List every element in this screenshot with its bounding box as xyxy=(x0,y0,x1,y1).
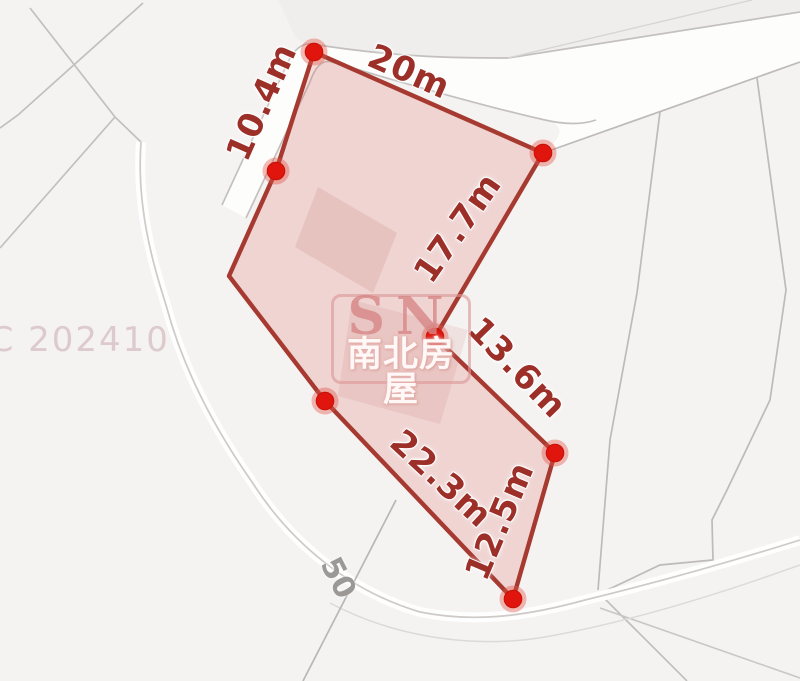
cadastral-boundary-line xyxy=(598,112,660,590)
watermark: SN 南北房屋 xyxy=(331,294,471,384)
cadastral-boundary-line xyxy=(30,8,115,117)
cadastral-boundary-line xyxy=(115,117,141,142)
cadastral-boundary-line xyxy=(598,592,687,681)
vertex-dot xyxy=(542,440,569,467)
vertex-dot xyxy=(530,140,557,167)
map-viewport[interactable]: 10.4m 20m 17.7m 13.6m 22.3m 12.5m 50 SC … xyxy=(0,0,800,681)
vertex-dot xyxy=(500,586,527,613)
reference-code-label: SC 202410 xyxy=(0,320,170,360)
cadastral-boundary-line xyxy=(0,117,115,248)
vertex-dot xyxy=(263,158,290,185)
cadastral-boundary-line xyxy=(0,3,143,128)
watermark-company-name: 南北房屋 xyxy=(334,338,468,408)
